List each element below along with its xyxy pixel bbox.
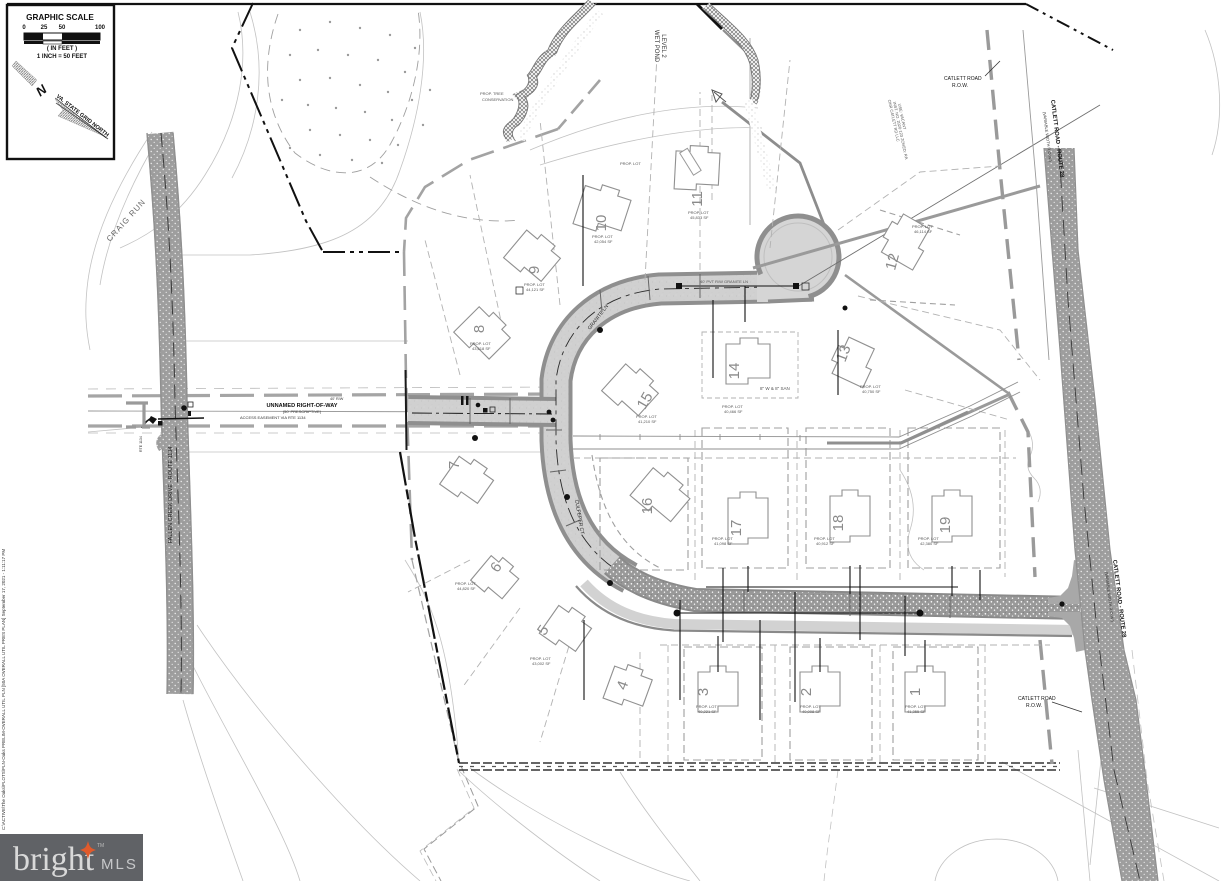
svg-text:GRAPHIC SCALE: GRAPHIC SCALE [26,13,94,22]
svg-text:WET POND: WET POND [653,30,659,63]
svg-text:16: 16 [639,498,656,515]
svg-text:40' PVT R/W GRANITE LN: 40' PVT R/W GRANITE LN [700,279,748,284]
svg-text:41,210 SF: 41,210 SF [638,419,657,424]
svg-text:ACCESS EASEMENT VIA RTE 1134: ACCESS EASEMENT VIA RTE 1134 [240,415,306,420]
svg-text:43,618 SF: 43,618 SF [472,346,491,351]
svg-text:R.O.W.: R.O.W. [952,83,968,89]
svg-text:19: 19 [937,517,954,534]
svg-text:40,912 SF: 40,912 SF [816,541,835,546]
svg-text:42,380 SF: 42,380 SF [920,541,939,546]
svg-text:LEVEL 2: LEVEL 2 [660,34,666,58]
svg-text:(50' PRESCRIPTIVE): (50' PRESCRIPTIVE) [283,409,322,414]
svg-text:11: 11 [689,191,706,207]
svg-text:50: 50 [59,25,66,31]
svg-text:7: 7 [446,461,463,469]
svg-text:FALLEN CREEK DRIVE - ROUTE 113: FALLEN CREEK DRIVE - ROUTE 1134 [168,447,174,544]
svg-text:MLS: MLS [101,856,138,873]
svg-text:RTE 1134: RTE 1134 [139,436,143,452]
svg-text:40,221 SF: 40,221 SF [698,709,717,714]
svg-text:40,466 SF: 40,466 SF [724,409,743,414]
svg-text:42,054 SF: 42,054 SF [594,239,613,244]
svg-text:CATLETT ROAD: CATLETT ROAD [1018,696,1056,702]
svg-text:25: 25 [41,25,48,31]
svg-text:45,833 SF: 45,833 SF [690,215,709,220]
svg-text:41,098 SF: 41,098 SF [714,541,733,546]
svg-text:44,820 SF: 44,820 SF [457,586,476,591]
svg-text:8" W & 8" SAN: 8" W & 8" SAN [760,386,790,391]
svg-text:10: 10 [593,215,610,232]
svg-text:40,750 SF: 40,750 SF [862,389,881,394]
svg-text:40,008 SF: 40,008 SF [802,709,821,714]
svg-text:PROP. LOT: PROP. LOT [620,161,641,166]
svg-text:46,114 SF: 46,114 SF [914,229,933,234]
svg-text:TM: TM [97,843,104,849]
svg-text:1: 1 [907,688,924,696]
svg-text:18: 18 [830,515,847,532]
svg-text:2: 2 [798,688,815,696]
svg-text:C:\ACTIVE\The Oaks\PLOTS\PLN-O: C:\ACTIVE\The Oaks\PLOTS\PLN-Oaks PRELIM… [1,549,6,830]
svg-text:CATLETT ROAD: CATLETT ROAD [944,76,982,82]
svg-text:43,002 SF: 43,002 SF [532,661,551,666]
svg-text:1 INCH = 50 FEET: 1 INCH = 50 FEET [37,54,88,60]
svg-text:R.O.W.: R.O.W. [1026,703,1042,709]
svg-text:PROP. TREE: PROP. TREE [480,91,504,96]
svg-text:bright: bright [13,841,95,878]
svg-text:44,121 SF: 44,121 SF [526,287,545,292]
svg-text:14: 14 [726,363,743,380]
svg-text:17: 17 [728,520,745,537]
svg-text:41,355 SF: 41,355 SF [907,709,926,714]
svg-text:( IN FEET ): ( IN FEET ) [47,46,77,52]
svg-text:100: 100 [95,25,106,31]
svg-text:9: 9 [526,266,543,274]
svg-text:40' R/W: 40' R/W [330,397,344,401]
svg-text:CONSERVATION: CONSERVATION [482,97,513,102]
svg-text:3: 3 [695,688,712,696]
svg-text:8: 8 [471,325,488,333]
